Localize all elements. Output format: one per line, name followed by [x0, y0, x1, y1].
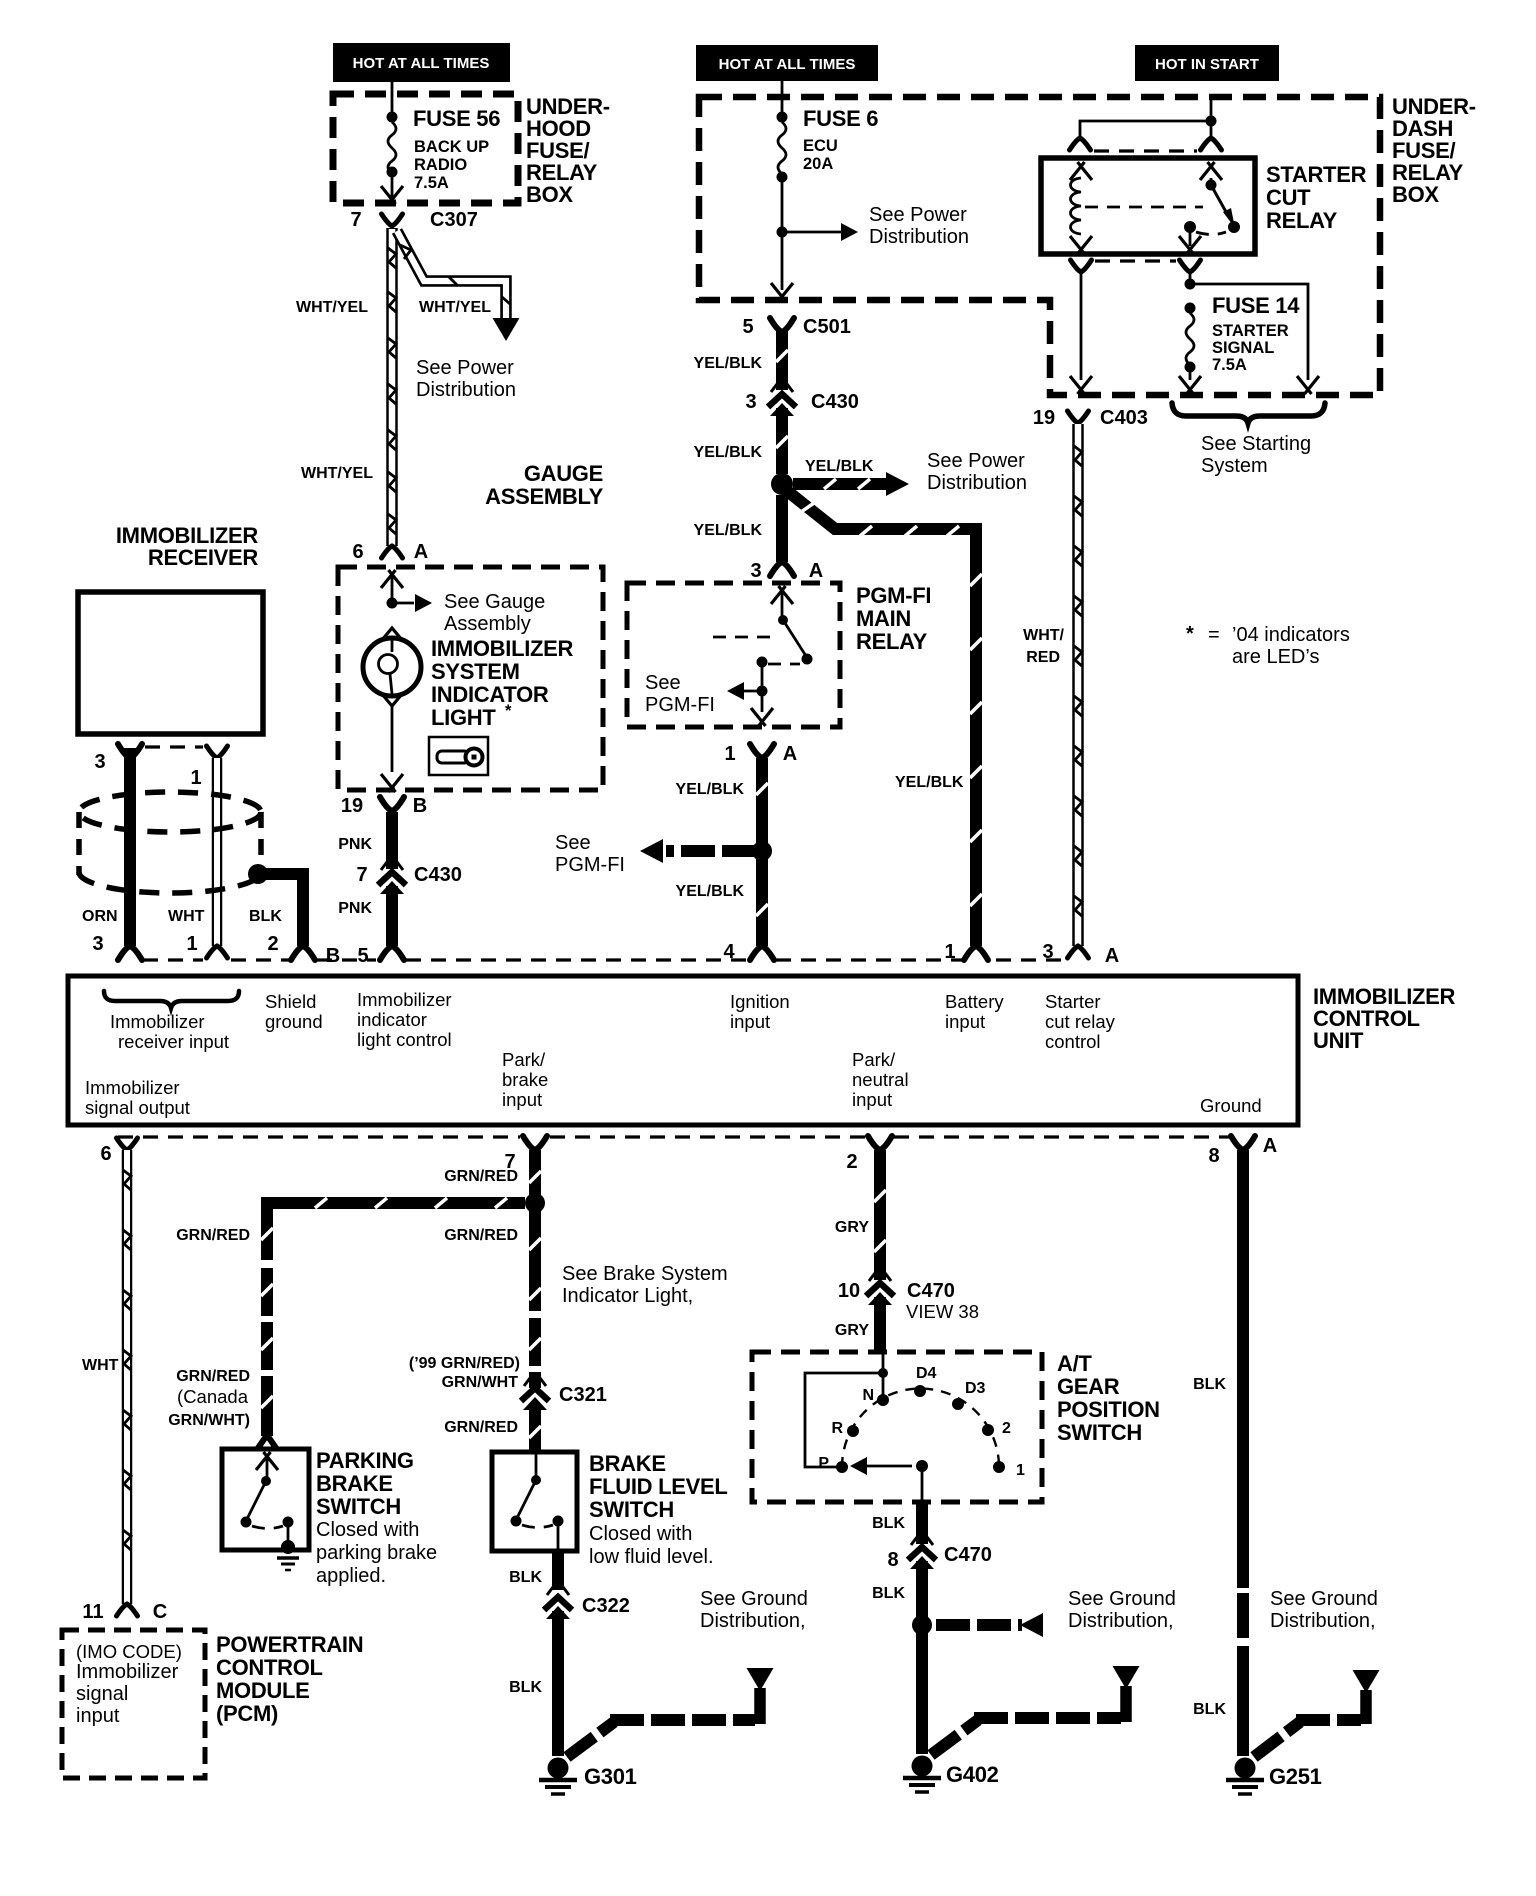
svg-text:C501: C501 [803, 316, 851, 338]
svg-text:A/T: A/T [1057, 1351, 1092, 1376]
svg-text:See Ground: See Ground [1270, 1588, 1378, 1610]
svg-text:MAIN: MAIN [856, 606, 911, 631]
svg-text:input: input [730, 1011, 770, 1032]
svg-text:signal: signal [76, 1683, 128, 1705]
svg-text:3: 3 [745, 391, 756, 413]
svg-text:C322: C322 [582, 1595, 630, 1617]
svg-text:input: input [502, 1089, 542, 1110]
svg-text:7.5A: 7.5A [414, 174, 449, 192]
svg-text:(IMO CODE): (IMO CODE) [76, 1641, 182, 1662]
svg-text:STARTER: STARTER [1212, 322, 1289, 340]
svg-text:low fluid level.: low fluid level. [589, 1546, 714, 1568]
svg-text:ASSEMBLY: ASSEMBLY [485, 484, 603, 509]
svg-text:C307: C307 [430, 209, 478, 231]
svg-text:GRN/RED: GRN/RED [176, 1227, 250, 1244]
svg-text:5: 5 [357, 945, 368, 967]
svg-text:light control: light control [357, 1029, 452, 1050]
svg-text:See Power: See Power [927, 450, 1025, 472]
svg-text:IMMOBILIZER: IMMOBILIZER [431, 636, 574, 661]
svg-text:YEL/BLK: YEL/BLK [805, 458, 874, 475]
svg-text:FUSE 14: FUSE 14 [1212, 293, 1300, 318]
svg-text:BLK: BLK [872, 1585, 905, 1602]
svg-text:6: 6 [100, 1143, 111, 1165]
svg-text:RADIO: RADIO [414, 156, 467, 174]
svg-text:YEL/BLK: YEL/BLK [676, 883, 745, 900]
svg-text:C470: C470 [907, 1280, 955, 1302]
svg-text:PNK: PNK [338, 900, 372, 917]
svg-text:WHT/YEL: WHT/YEL [301, 465, 373, 482]
svg-text:GRN/RED: GRN/RED [444, 1168, 518, 1185]
svg-text:System: System [1201, 455, 1268, 477]
svg-text:WHT/: WHT/ [1023, 627, 1064, 644]
svg-text:PARKING: PARKING [316, 1448, 414, 1473]
svg-text:brake: brake [502, 1069, 548, 1090]
svg-text:input: input [76, 1705, 120, 1727]
svg-text:See Brake System: See Brake System [562, 1263, 728, 1285]
svg-text:GRN/WHT: GRN/WHT [442, 1374, 519, 1391]
svg-text:A: A [414, 541, 428, 563]
svg-text:19: 19 [341, 795, 363, 817]
svg-text:POWERTRAIN: POWERTRAIN [216, 1632, 363, 1657]
svg-text:PGM-FI: PGM-FI [856, 583, 931, 608]
svg-text:BLK: BLK [509, 1679, 542, 1696]
svg-text:See Ground: See Ground [700, 1588, 808, 1610]
svg-text:RECEIVER: RECEIVER [148, 545, 258, 570]
svg-text:Distribution: Distribution [416, 379, 516, 401]
svg-text:BRAKE: BRAKE [316, 1471, 393, 1496]
svg-text:YEL/BLK: YEL/BLK [676, 781, 745, 798]
svg-text:1: 1 [190, 767, 201, 789]
svg-text:BLK: BLK [872, 1515, 905, 1532]
svg-text:SIGNAL: SIGNAL [1212, 339, 1274, 357]
svg-text:FUSE 6: FUSE 6 [803, 106, 878, 131]
svg-text:P: P [818, 1455, 829, 1472]
svg-text:3: 3 [94, 751, 105, 773]
svg-text:WHT/YEL: WHT/YEL [296, 299, 368, 316]
svg-text:BACK UP: BACK UP [414, 138, 489, 156]
svg-text:INDICATOR: INDICATOR [431, 682, 549, 707]
svg-text:Immobilizer: Immobilizer [357, 989, 452, 1010]
svg-text:20A: 20A [803, 155, 833, 173]
svg-text:YEL/BLK: YEL/BLK [895, 774, 964, 791]
svg-text:GRN/RED: GRN/RED [176, 1368, 250, 1385]
svg-text:3: 3 [92, 933, 103, 955]
svg-text:CUT: CUT [1266, 185, 1311, 210]
svg-text:GRY: GRY [835, 1219, 869, 1236]
svg-text:RELAY: RELAY [1266, 208, 1338, 233]
svg-text:CONTROL: CONTROL [216, 1655, 323, 1680]
svg-text:6: 6 [352, 541, 363, 563]
svg-text:Immobilizer: Immobilizer [85, 1077, 180, 1098]
svg-text:7: 7 [356, 864, 367, 886]
svg-text:Distribution,: Distribution, [1270, 1610, 1376, 1632]
svg-text:GRN/WHT): GRN/WHT) [168, 1412, 250, 1429]
svg-text:C470: C470 [944, 1544, 992, 1566]
svg-text:Park/: Park/ [852, 1049, 896, 1070]
svg-text:GRN/RED: GRN/RED [444, 1419, 518, 1436]
svg-text:N: N [862, 1387, 874, 1404]
svg-text:PGM-FI: PGM-FI [555, 854, 625, 876]
svg-text:5: 5 [742, 316, 753, 338]
svg-text:10: 10 [838, 1280, 860, 1302]
svg-text:D4: D4 [916, 1365, 937, 1382]
svg-text:1: 1 [724, 743, 735, 765]
svg-text:G301: G301 [584, 1764, 637, 1789]
svg-text:GAUGE: GAUGE [524, 461, 603, 486]
svg-text:Distribution,: Distribution, [700, 1610, 806, 1632]
svg-text:applied.: applied. [316, 1565, 386, 1587]
svg-text:SWITCH: SWITCH [316, 1494, 401, 1519]
svg-text:indicator: indicator [357, 1009, 427, 1030]
svg-text:HOT AT ALL TIMES: HOT AT ALL TIMES [353, 55, 490, 72]
svg-text:MODULE: MODULE [216, 1678, 310, 1703]
svg-text:SWITCH: SWITCH [1057, 1420, 1142, 1445]
svg-text:3: 3 [1042, 941, 1053, 963]
svg-text:See: See [555, 832, 591, 854]
svg-text:=: = [1208, 624, 1220, 646]
svg-text:GRN/RED: GRN/RED [444, 1227, 518, 1244]
svg-text:BLK: BLK [1193, 1701, 1226, 1718]
svg-text:8: 8 [1208, 1145, 1219, 1167]
svg-text:1: 1 [944, 941, 955, 963]
svg-text:HOT AT ALL TIMES: HOT AT ALL TIMES [719, 56, 856, 73]
svg-text:WHT: WHT [168, 908, 205, 925]
svg-text:YEL/BLK: YEL/BLK [694, 444, 763, 461]
svg-text:Closed with: Closed with [316, 1519, 419, 1541]
svg-text:Starter: Starter [1045, 991, 1101, 1012]
svg-text:A: A [1105, 945, 1119, 967]
svg-text:BRAKE: BRAKE [589, 1451, 666, 1476]
svg-text:YEL/BLK: YEL/BLK [694, 355, 763, 372]
svg-text:WHT/YEL: WHT/YEL [419, 299, 491, 316]
svg-text:*: * [505, 702, 512, 720]
svg-text:RED: RED [1026, 649, 1060, 666]
svg-text:7: 7 [350, 209, 361, 231]
svg-text:Assembly: Assembly [444, 613, 531, 635]
svg-text:control: control [1045, 1031, 1101, 1052]
svg-text:Distribution: Distribution [927, 472, 1027, 494]
svg-text:BLK: BLK [509, 1569, 542, 1586]
svg-text:A: A [809, 560, 823, 582]
svg-text:(’99 GRN/RED): (’99 GRN/RED) [409, 1355, 520, 1372]
svg-text:FUSE 56: FUSE 56 [413, 106, 500, 131]
svg-text:input: input [852, 1089, 892, 1110]
svg-text:D3: D3 [965, 1380, 986, 1397]
svg-text:Shield: Shield [265, 991, 316, 1012]
svg-text:Ground: Ground [1200, 1095, 1262, 1116]
svg-text:8: 8 [887, 1549, 898, 1571]
svg-text:’04 indicators: ’04 indicators [1232, 624, 1350, 646]
svg-text:BLK: BLK [249, 908, 282, 925]
svg-text:WHT: WHT [82, 1357, 119, 1374]
svg-text:ground: ground [265, 1011, 323, 1032]
svg-text:See Power: See Power [869, 204, 967, 226]
svg-text:PNK: PNK [338, 836, 372, 853]
svg-text:C: C [153, 1601, 167, 1623]
svg-text:Distribution,: Distribution, [1068, 1610, 1174, 1632]
svg-text:R: R [831, 1420, 843, 1437]
svg-text:19: 19 [1033, 407, 1055, 429]
svg-text:BOX: BOX [526, 182, 573, 207]
svg-text:See Ground: See Ground [1068, 1588, 1176, 1610]
svg-text:A: A [783, 743, 797, 765]
svg-text:See Gauge: See Gauge [444, 591, 545, 613]
svg-text:1: 1 [1016, 1462, 1025, 1479]
svg-text:ECU: ECU [803, 137, 838, 155]
svg-text:UNIT: UNIT [1313, 1028, 1364, 1053]
svg-text:Indicator Light,: Indicator Light, [562, 1285, 693, 1307]
svg-text:See Starting: See Starting [1201, 433, 1311, 455]
svg-text:Immobilizer: Immobilizer [110, 1011, 205, 1032]
svg-text:LIGHT: LIGHT [431, 705, 496, 730]
svg-text:ORN: ORN [82, 908, 118, 925]
svg-text:parking brake: parking brake [316, 1542, 437, 1564]
svg-text:3: 3 [750, 560, 761, 582]
svg-text:See: See [645, 672, 681, 694]
svg-text:SWITCH: SWITCH [589, 1497, 674, 1522]
svg-text:are LED’s: are LED’s [1232, 646, 1319, 668]
svg-text:Battery: Battery [945, 991, 1004, 1012]
svg-text:See Power: See Power [416, 357, 514, 379]
svg-text:YEL/BLK: YEL/BLK [694, 522, 763, 539]
svg-text:C430: C430 [414, 864, 462, 886]
svg-text:cut relay: cut relay [1045, 1011, 1116, 1032]
svg-text:BOX: BOX [1392, 182, 1439, 207]
svg-text:4: 4 [723, 941, 735, 963]
svg-text:C403: C403 [1100, 407, 1148, 429]
svg-text:2: 2 [1002, 1420, 1011, 1437]
svg-text:2: 2 [846, 1151, 857, 1173]
svg-text:B: B [413, 795, 427, 817]
svg-text:GRY: GRY [835, 1322, 869, 1339]
svg-text:B: B [326, 945, 340, 967]
svg-text:BLK: BLK [1193, 1376, 1226, 1393]
svg-text:signal output: signal output [85, 1097, 190, 1118]
svg-text:STARTER: STARTER [1266, 162, 1367, 187]
svg-text:SYSTEM: SYSTEM [431, 659, 520, 684]
svg-text:Park/: Park/ [502, 1049, 546, 1070]
svg-text:C321: C321 [559, 1384, 607, 1406]
svg-text:HOT IN START: HOT IN START [1155, 56, 1259, 73]
svg-text:G251: G251 [1269, 1764, 1322, 1789]
svg-text:2: 2 [267, 933, 278, 955]
svg-text:Immobilizer: Immobilizer [76, 1661, 179, 1683]
svg-text:(PCM): (PCM) [216, 1701, 278, 1726]
svg-text:(Canada: (Canada [177, 1386, 249, 1407]
svg-text:receiver input: receiver input [118, 1031, 229, 1052]
svg-text:POSITION: POSITION [1057, 1397, 1160, 1422]
svg-text:7.5A: 7.5A [1212, 356, 1247, 374]
svg-text:Ignition: Ignition [730, 991, 790, 1012]
svg-text:Distribution: Distribution [869, 226, 969, 248]
svg-text:*: * [1186, 623, 1194, 645]
svg-text:Closed with: Closed with [589, 1523, 692, 1545]
svg-text:neutral: neutral [852, 1069, 909, 1090]
svg-text:1: 1 [186, 933, 197, 955]
svg-text:11: 11 [82, 1601, 103, 1623]
svg-text:G402: G402 [946, 1762, 999, 1787]
svg-text:FLUID LEVEL: FLUID LEVEL [589, 1474, 727, 1499]
svg-text:VIEW 38: VIEW 38 [906, 1301, 979, 1322]
svg-text:PGM-FI: PGM-FI [645, 694, 715, 716]
svg-text:RELAY: RELAY [856, 629, 928, 654]
svg-text:C430: C430 [811, 391, 859, 413]
svg-text:A: A [1263, 1135, 1277, 1157]
svg-text:GEAR: GEAR [1057, 1374, 1120, 1399]
svg-text:input: input [945, 1011, 985, 1032]
